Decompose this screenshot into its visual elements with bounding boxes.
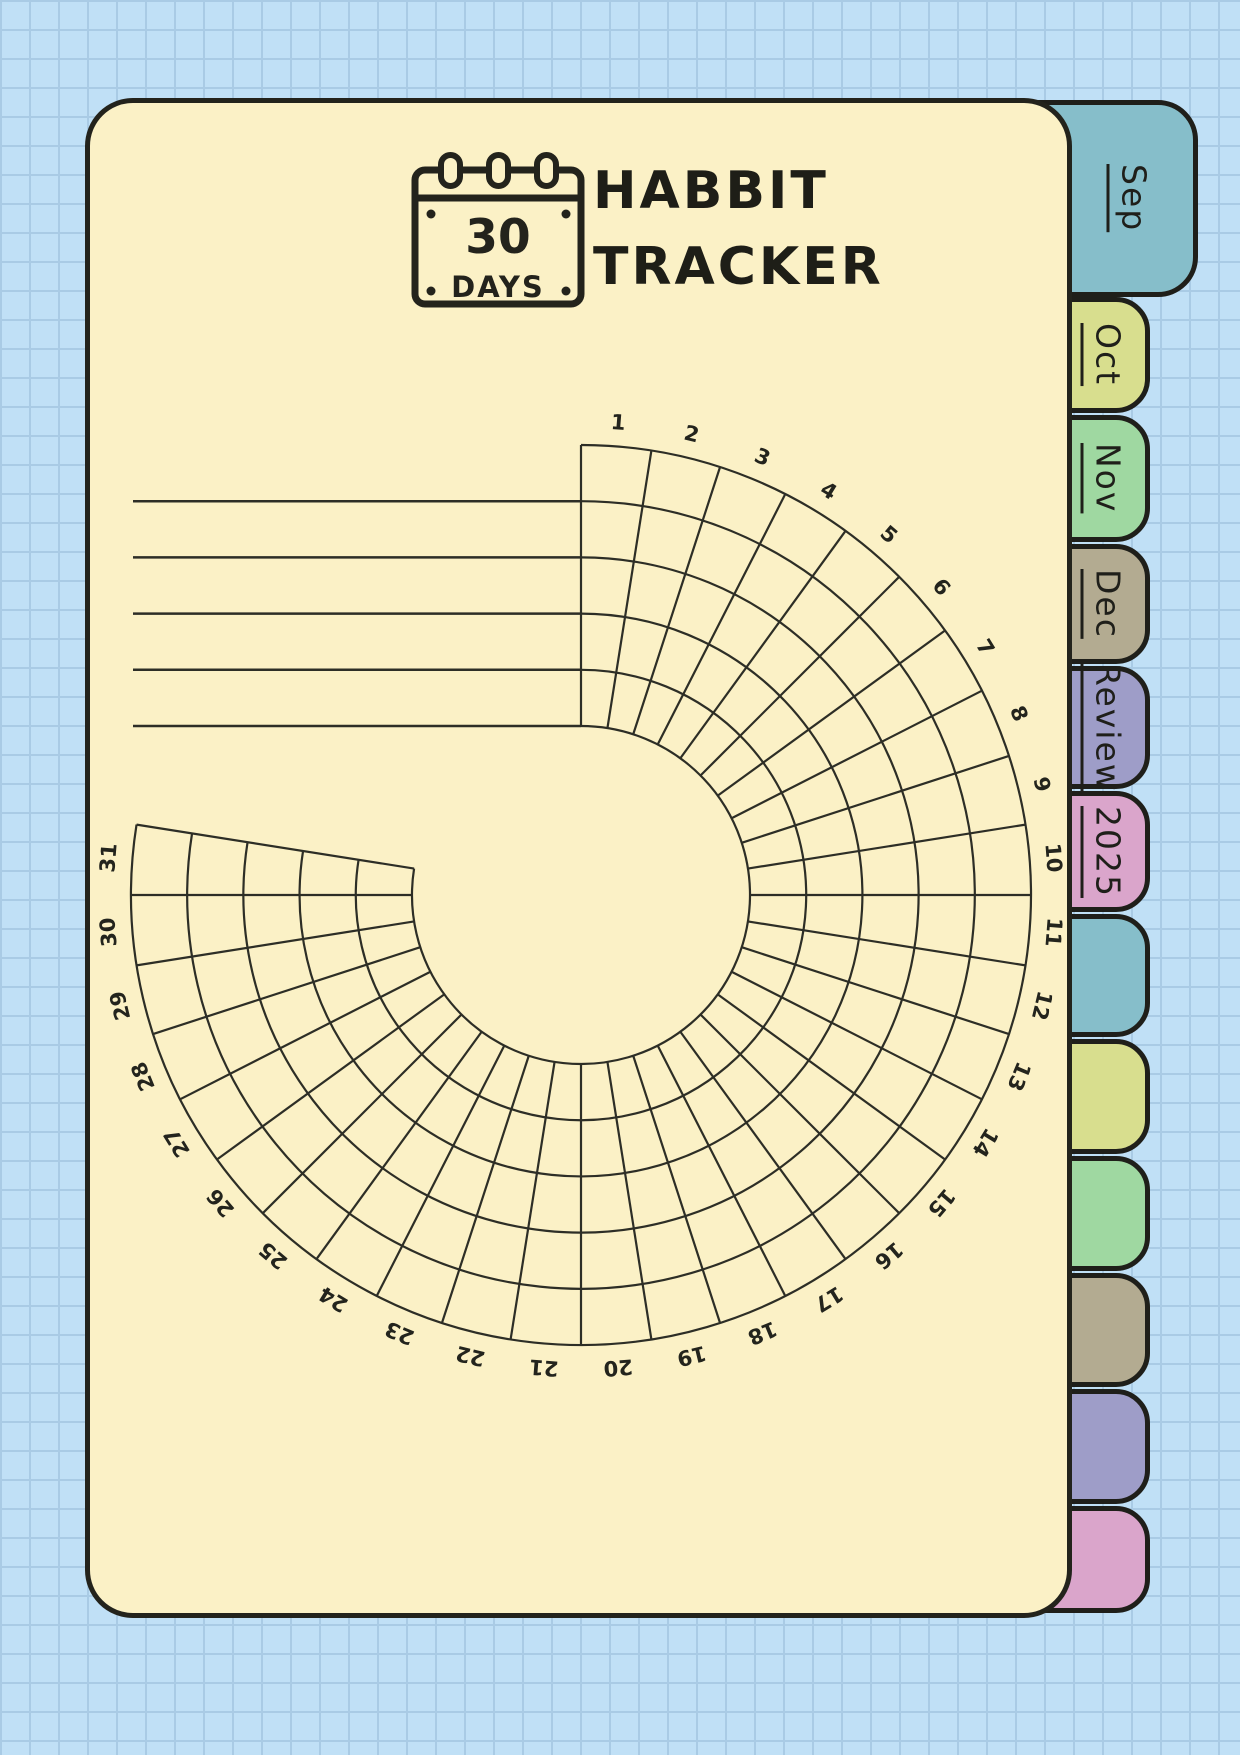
calendar-ring-icon [441, 155, 460, 186]
calendar-dot [427, 287, 436, 296]
page-title-line1: HABBIT [593, 153, 884, 229]
planner-canvas: SepOctNovDecReview2025 30 DAYS HABB [0, 0, 1240, 1755]
tab-label: Nov [1089, 443, 1128, 513]
tab-label: Review [1089, 663, 1128, 793]
calendar-ring-icon [489, 155, 508, 186]
page-title: HABBIT TRACKER [593, 153, 884, 305]
badge-label: DAYS [451, 270, 545, 304]
calendar-dot [427, 210, 436, 219]
page-title-line2: TRACKER [593, 229, 884, 305]
calendar-ring-icon [537, 155, 556, 186]
calendar-dot [562, 210, 571, 219]
badge-number: 30 [465, 210, 530, 265]
tab-label: 2025 [1089, 806, 1128, 898]
calendar-30-days-icon: 30 DAYS [405, 141, 601, 317]
tab-label: Dec [1089, 569, 1128, 639]
tab-label: Sep [1115, 164, 1154, 232]
planner-page: 30 DAYS HABBIT TRACKER [85, 98, 1072, 1618]
calendar-dot [562, 287, 571, 296]
tab-label: Oct [1089, 323, 1128, 386]
